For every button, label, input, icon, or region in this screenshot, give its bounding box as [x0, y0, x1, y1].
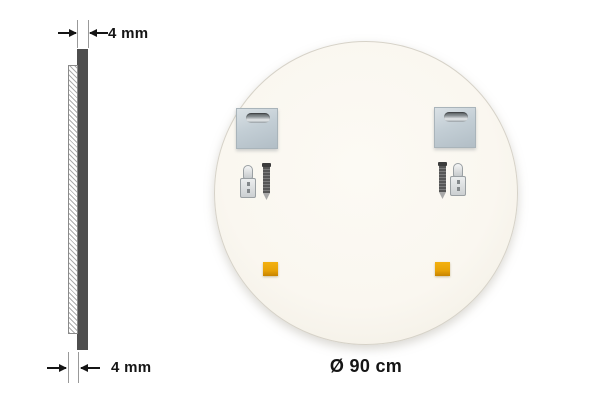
thickness-label-top: 4 mm	[108, 25, 148, 42]
anchor-slot	[247, 189, 250, 193]
extension-line	[78, 352, 79, 383]
dimension-arrow-icon	[81, 367, 100, 369]
screw-icon	[438, 162, 447, 199]
keyhole-slot-icon	[444, 112, 468, 122]
mirror-edge-profile	[77, 49, 88, 350]
screw-shank	[263, 167, 270, 193]
mounting-bracket-left	[236, 108, 278, 149]
anchor-body	[240, 178, 256, 198]
diameter-label: Ø 90 cm	[214, 356, 518, 377]
wall-anchor-icon	[240, 165, 256, 198]
extension-line	[68, 352, 69, 383]
anchor-body	[450, 176, 466, 196]
screw-shank	[439, 166, 446, 192]
adhesive-pad-icon	[263, 262, 278, 276]
thickness-label-bottom: 4 mm	[111, 359, 151, 376]
adhesive-pad-icon	[435, 262, 450, 276]
anchor-slot	[247, 182, 250, 186]
extension-line	[77, 20, 78, 48]
screw-icon	[262, 163, 271, 200]
anchor-cap	[243, 165, 253, 179]
mounting-bracket-right	[434, 107, 476, 148]
glass-cross-section-hatch	[68, 65, 78, 334]
anchor-slot	[457, 187, 460, 191]
screw-tip	[263, 193, 270, 200]
anchor-slot	[457, 180, 460, 184]
dimension-arrow-icon	[90, 32, 108, 34]
screw-tip	[439, 192, 446, 199]
wall-anchor-icon	[450, 163, 466, 196]
product-dimension-diagram: 4 mm 4 mm	[0, 0, 600, 400]
anchor-cap	[453, 163, 463, 177]
mirror-back-circle	[214, 41, 518, 345]
keyhole-slot-icon	[246, 113, 270, 123]
dimension-arrow-icon	[47, 367, 66, 369]
dimension-arrow-icon	[58, 32, 76, 34]
